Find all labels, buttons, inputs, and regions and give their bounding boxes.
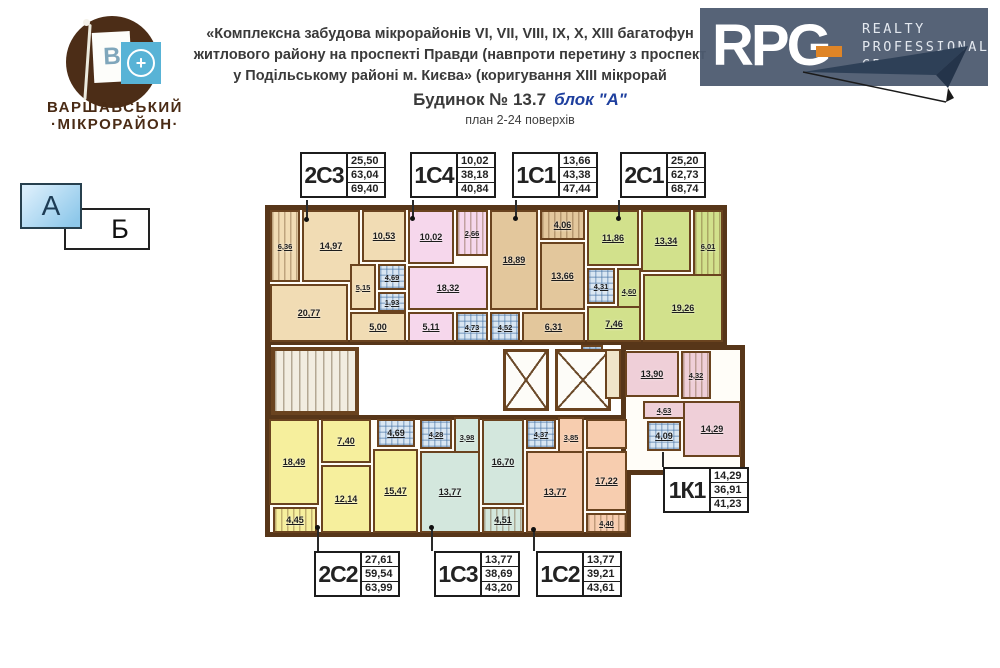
room: 4,51 [482, 507, 524, 533]
area-value: 59,54 [362, 567, 398, 581]
area-value: 47,44 [560, 183, 596, 196]
area-value: 13,66 [560, 154, 596, 168]
leader-dot [315, 525, 320, 530]
apartment-code: 2С3 [302, 154, 346, 196]
paper-plane-icon [798, 42, 993, 110]
room-area-label: 10,02 [420, 232, 443, 242]
room-area-label: 18,49 [283, 457, 306, 467]
elevator-shaft [503, 349, 549, 411]
room: 4,73 [456, 312, 488, 342]
utility-room [605, 349, 621, 399]
room-area-label: 4,28 [429, 430, 444, 439]
room-area-label: 17,22 [595, 476, 618, 486]
room-area-label: 5,15 [356, 283, 371, 292]
room-area-label: 10,53 [373, 231, 396, 241]
apartment-code: 1С2 [538, 553, 582, 595]
apartment-label-1с3[interactable]: 1С313,7738,6943,20 [434, 551, 520, 597]
apartment-areas: 25,2062,7368,74 [666, 154, 704, 196]
room-area-label: 5,00 [369, 322, 387, 332]
room: 4,28 [420, 419, 452, 449]
room: 18,49 [269, 419, 319, 505]
apartment-label-2с2[interactable]: 2С227,6159,5463,99 [314, 551, 400, 597]
area-value: 63,99 [362, 582, 398, 595]
area-value: 10,02 [458, 154, 494, 168]
area-value: 40,84 [458, 183, 494, 196]
room: 5,15 [350, 264, 376, 310]
leader-dot [616, 216, 621, 221]
block-tab-a-selected[interactable]: А [20, 183, 82, 229]
room: 1,93 [378, 292, 406, 312]
room: 6,01 [693, 210, 723, 282]
room: 4,06 [540, 210, 585, 240]
room-area-label: 12,14 [335, 494, 358, 504]
room: 4,52 [490, 312, 520, 342]
room-area-label: 20,77 [298, 308, 321, 318]
room: 7,46 [587, 306, 641, 342]
room: 6,31 [522, 312, 585, 342]
apartment-label-2с3[interactable]: 2С325,5063,0469,40 [300, 152, 386, 198]
room-area-label: 3,98 [460, 433, 475, 442]
room-area-label: 4,45 [286, 515, 304, 525]
area-value: 27,61 [362, 553, 398, 567]
room: 15,47 [373, 449, 418, 533]
room-area-label: 6,36 [278, 242, 293, 251]
room: 5,11 [408, 312, 454, 342]
room-area-label: 13,90 [641, 369, 664, 379]
apartment-label-2с1[interactable]: 2С125,2062,7368,74 [620, 152, 706, 198]
leader-dot [304, 217, 309, 222]
leader-line [431, 527, 433, 551]
room: 4,45 [273, 507, 317, 533]
room-area-label: 7,46 [605, 319, 623, 329]
room [586, 419, 627, 449]
room: 7,40 [321, 419, 371, 463]
project-title: «Комплексна забудова мікрорайонів VI, VI… [130, 24, 770, 87]
room-area-label: 4,63 [657, 406, 672, 415]
room-area-label: 13,77 [544, 487, 567, 497]
apartment-code: 2С1 [622, 154, 666, 196]
block-name: блок "А" [554, 90, 627, 109]
room-area-label: 13,34 [655, 236, 678, 246]
room-area-label: 4,31 [594, 282, 609, 291]
leader-dot [429, 525, 434, 530]
page: { "branding": { "microdistrict": {"flag_… [0, 0, 1000, 668]
area-value: 39,21 [584, 567, 620, 581]
room: 4,69 [377, 419, 415, 447]
room: 10,53 [362, 210, 406, 262]
area-value: 13,77 [482, 553, 518, 567]
area-value: 36,91 [711, 483, 747, 497]
room-area-label: 13,66 [551, 271, 574, 281]
leader-dot [531, 527, 536, 532]
leader-line [317, 527, 319, 551]
room-area-label: 2,66 [465, 229, 480, 238]
room-area-label: 14,97 [320, 241, 343, 251]
room: 4,63 [643, 401, 685, 419]
room-area-label: 14,29 [701, 424, 724, 434]
room-area-label: 19,26 [672, 303, 695, 313]
apartment-label-1к1[interactable]: 1К114,2936,9141,23 [663, 467, 749, 513]
room: 13,77 [526, 451, 584, 533]
room-area-label: 4,40 [599, 519, 614, 528]
room-area-label: 1,93 [385, 298, 400, 307]
apartment-areas: 13,6643,3847,44 [558, 154, 596, 196]
room: 14,29 [683, 401, 741, 457]
leader-line [662, 452, 664, 467]
building-subtitle: Будинок № 13.7блок "А" [280, 90, 760, 110]
room-area-label: 4,37 [534, 430, 549, 439]
room: 4,32 [681, 351, 711, 399]
microdistrict-name: ВАРШАВСЬКИЙ ·МІКРОРАЙОН· [25, 99, 205, 133]
elevator-shaft [555, 349, 611, 411]
room: 4,31 [587, 268, 615, 304]
room-area-label: 4,69 [387, 428, 405, 438]
room: 18,32 [408, 266, 488, 310]
staircase [271, 347, 359, 415]
room: 4,40 [586, 513, 627, 533]
area-value: 43,61 [584, 582, 620, 595]
apartment-areas: 25,5063,0469,40 [346, 154, 384, 196]
room-area-label: 6,31 [545, 322, 563, 332]
room: 4,09 [647, 421, 681, 451]
room-area-label: 4,69 [385, 273, 400, 282]
room: 13,66 [540, 242, 585, 310]
room-area-label: 4,09 [655, 431, 673, 441]
area-value: 43,20 [482, 582, 518, 595]
area-value: 25,20 [668, 154, 704, 168]
room: 12,14 [321, 465, 371, 533]
area-value: 38,18 [458, 168, 494, 182]
area-value: 63,04 [348, 168, 384, 182]
room-area-label: 5,11 [422, 322, 439, 332]
room-area-label: 6,01 [701, 242, 716, 251]
apartment-areas: 27,6159,5463,99 [360, 553, 398, 595]
room: 4,37 [526, 419, 556, 449]
room: 4,69 [378, 264, 406, 290]
apartment-areas: 13,7739,2143,61 [582, 553, 620, 595]
area-value: 38,69 [482, 567, 518, 581]
area-value: 14,29 [711, 469, 747, 483]
apartment-code: 1С4 [412, 154, 456, 196]
room: 6,36 [270, 210, 300, 282]
room: 13,34 [641, 210, 691, 272]
room-area-label: 4,52 [498, 323, 513, 332]
apartment-code: 2С2 [316, 553, 360, 595]
apartment-areas: 14,2936,9141,23 [709, 469, 747, 511]
room-area-label: 4,06 [554, 220, 572, 230]
room-area-label: 7,40 [337, 436, 355, 446]
leader-line [533, 529, 535, 551]
floors-note: план 2-24 поверхів [280, 113, 760, 127]
leader-dot [513, 216, 518, 221]
flag-letter: В [103, 43, 122, 72]
apartment-code: 1С3 [436, 553, 480, 595]
room-area-label: 15,47 [384, 486, 407, 496]
room: 17,22 [586, 451, 627, 511]
apartment-code: 1К1 [665, 469, 709, 511]
area-value: 13,77 [584, 553, 620, 567]
apartment-areas: 13,7738,6943,20 [480, 553, 518, 595]
area-value: 62,73 [668, 168, 704, 182]
room-area-label: 4,32 [689, 371, 704, 380]
room: 18,89 [490, 210, 538, 310]
area-value: 68,74 [668, 183, 704, 196]
room: 5,00 [350, 312, 406, 342]
area-value: 69,40 [348, 183, 384, 196]
leader-dot [410, 216, 415, 221]
room: 13,77 [420, 451, 480, 533]
room: 19,26 [643, 274, 723, 342]
room-area-label: 16,70 [492, 457, 515, 467]
room-area-label: 13,77 [439, 487, 462, 497]
room-area-label: 4,73 [465, 323, 480, 332]
area-value: 25,50 [348, 154, 384, 168]
apartment-label-1с1[interactable]: 1С113,6643,3847,44 [512, 152, 598, 198]
room: 11,86 [587, 210, 639, 266]
area-value: 41,23 [711, 498, 747, 511]
room: 16,70 [482, 419, 524, 505]
room-area-label: 18,89 [503, 255, 526, 265]
room: 20,77 [270, 284, 348, 342]
room-area-label: 4,60 [622, 287, 637, 296]
apartment-label-1с4[interactable]: 1С410,0238,1840,84 [410, 152, 496, 198]
room-area-label: 3,85 [564, 433, 579, 442]
room-area-label: 11,86 [602, 233, 624, 243]
apartment-areas: 10,0238,1840,84 [456, 154, 494, 196]
apartment-label-1с2[interactable]: 1С213,7739,2143,61 [536, 551, 622, 597]
apartment-code: 1С1 [514, 154, 558, 196]
room-area-label: 4,51 [494, 515, 512, 525]
room: 2,66 [456, 210, 488, 256]
room-area-label: 18,32 [437, 283, 460, 293]
area-value: 43,38 [560, 168, 596, 182]
room: 13,90 [625, 351, 679, 397]
